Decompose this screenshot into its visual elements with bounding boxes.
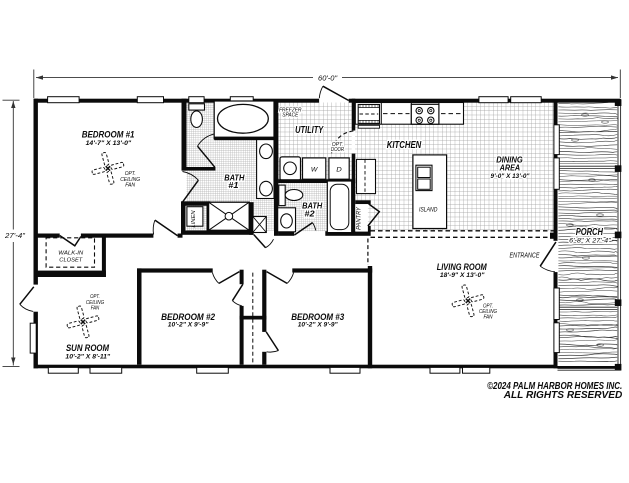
svg-text:UTILITY: UTILITY: [295, 125, 324, 136]
svg-text:SUN ROOM: SUN ROOM: [66, 343, 110, 354]
svg-text:PANTRY: PANTRY: [356, 206, 362, 230]
svg-text:SPACE: SPACE: [282, 112, 298, 118]
svg-text:6'-8" X 27'-4": 6'-8" X 27'-4": [569, 237, 611, 244]
svg-text:10'-2" X 8'-11": 10'-2" X 8'-11": [65, 354, 111, 361]
svg-text:#1: #1: [228, 180, 238, 190]
svg-text:10'-2" X 9'-9": 10'-2" X 9'-9": [298, 322, 338, 329]
svg-text:ISLAND: ISLAND: [419, 206, 438, 213]
svg-text:BEDROOM #2: BEDROOM #2: [161, 311, 216, 322]
svg-text:DOOR: DOOR: [331, 147, 344, 153]
svg-text:27'-4": 27'-4": [4, 231, 25, 240]
svg-text:KITCHEN: KITCHEN: [387, 140, 422, 151]
svg-text:ALL RIGHTS RESERVED: ALL RIGHTS RESERVED: [503, 390, 623, 401]
svg-text:#2: #2: [304, 208, 314, 218]
svg-text:9'-0" X 13'-0": 9'-0" X 13'-0": [491, 173, 530, 180]
svg-text:FAN: FAN: [484, 315, 493, 321]
svg-text:LINEN: LINEN: [191, 210, 197, 228]
svg-text:FAN: FAN: [125, 183, 135, 189]
svg-text:18'-9" X 13'-0": 18'-9" X 13'-0": [440, 272, 486, 279]
svg-text:CLOSET: CLOSET: [59, 258, 82, 264]
svg-text:AREA: AREA: [499, 162, 520, 172]
svg-text:LIVING ROOM: LIVING ROOM: [437, 262, 487, 272]
svg-text:D: D: [336, 166, 342, 173]
svg-text:10'-2" X 9'-9": 10'-2" X 9'-9": [168, 322, 209, 329]
svg-text:60'-0": 60'-0": [318, 74, 337, 83]
svg-text:14'-7" X 13'-0": 14'-7" X 13'-0": [86, 140, 133, 147]
svg-text:ENTRANCE: ENTRANCE: [510, 250, 540, 259]
svg-text:BEDROOM #1: BEDROOM #1: [82, 129, 135, 140]
svg-text:W: W: [311, 166, 318, 173]
svg-text:WALK-IN: WALK-IN: [58, 251, 84, 257]
svg-text:FAN: FAN: [91, 306, 100, 312]
svg-text:BEDROOM #3: BEDROOM #3: [291, 311, 345, 322]
